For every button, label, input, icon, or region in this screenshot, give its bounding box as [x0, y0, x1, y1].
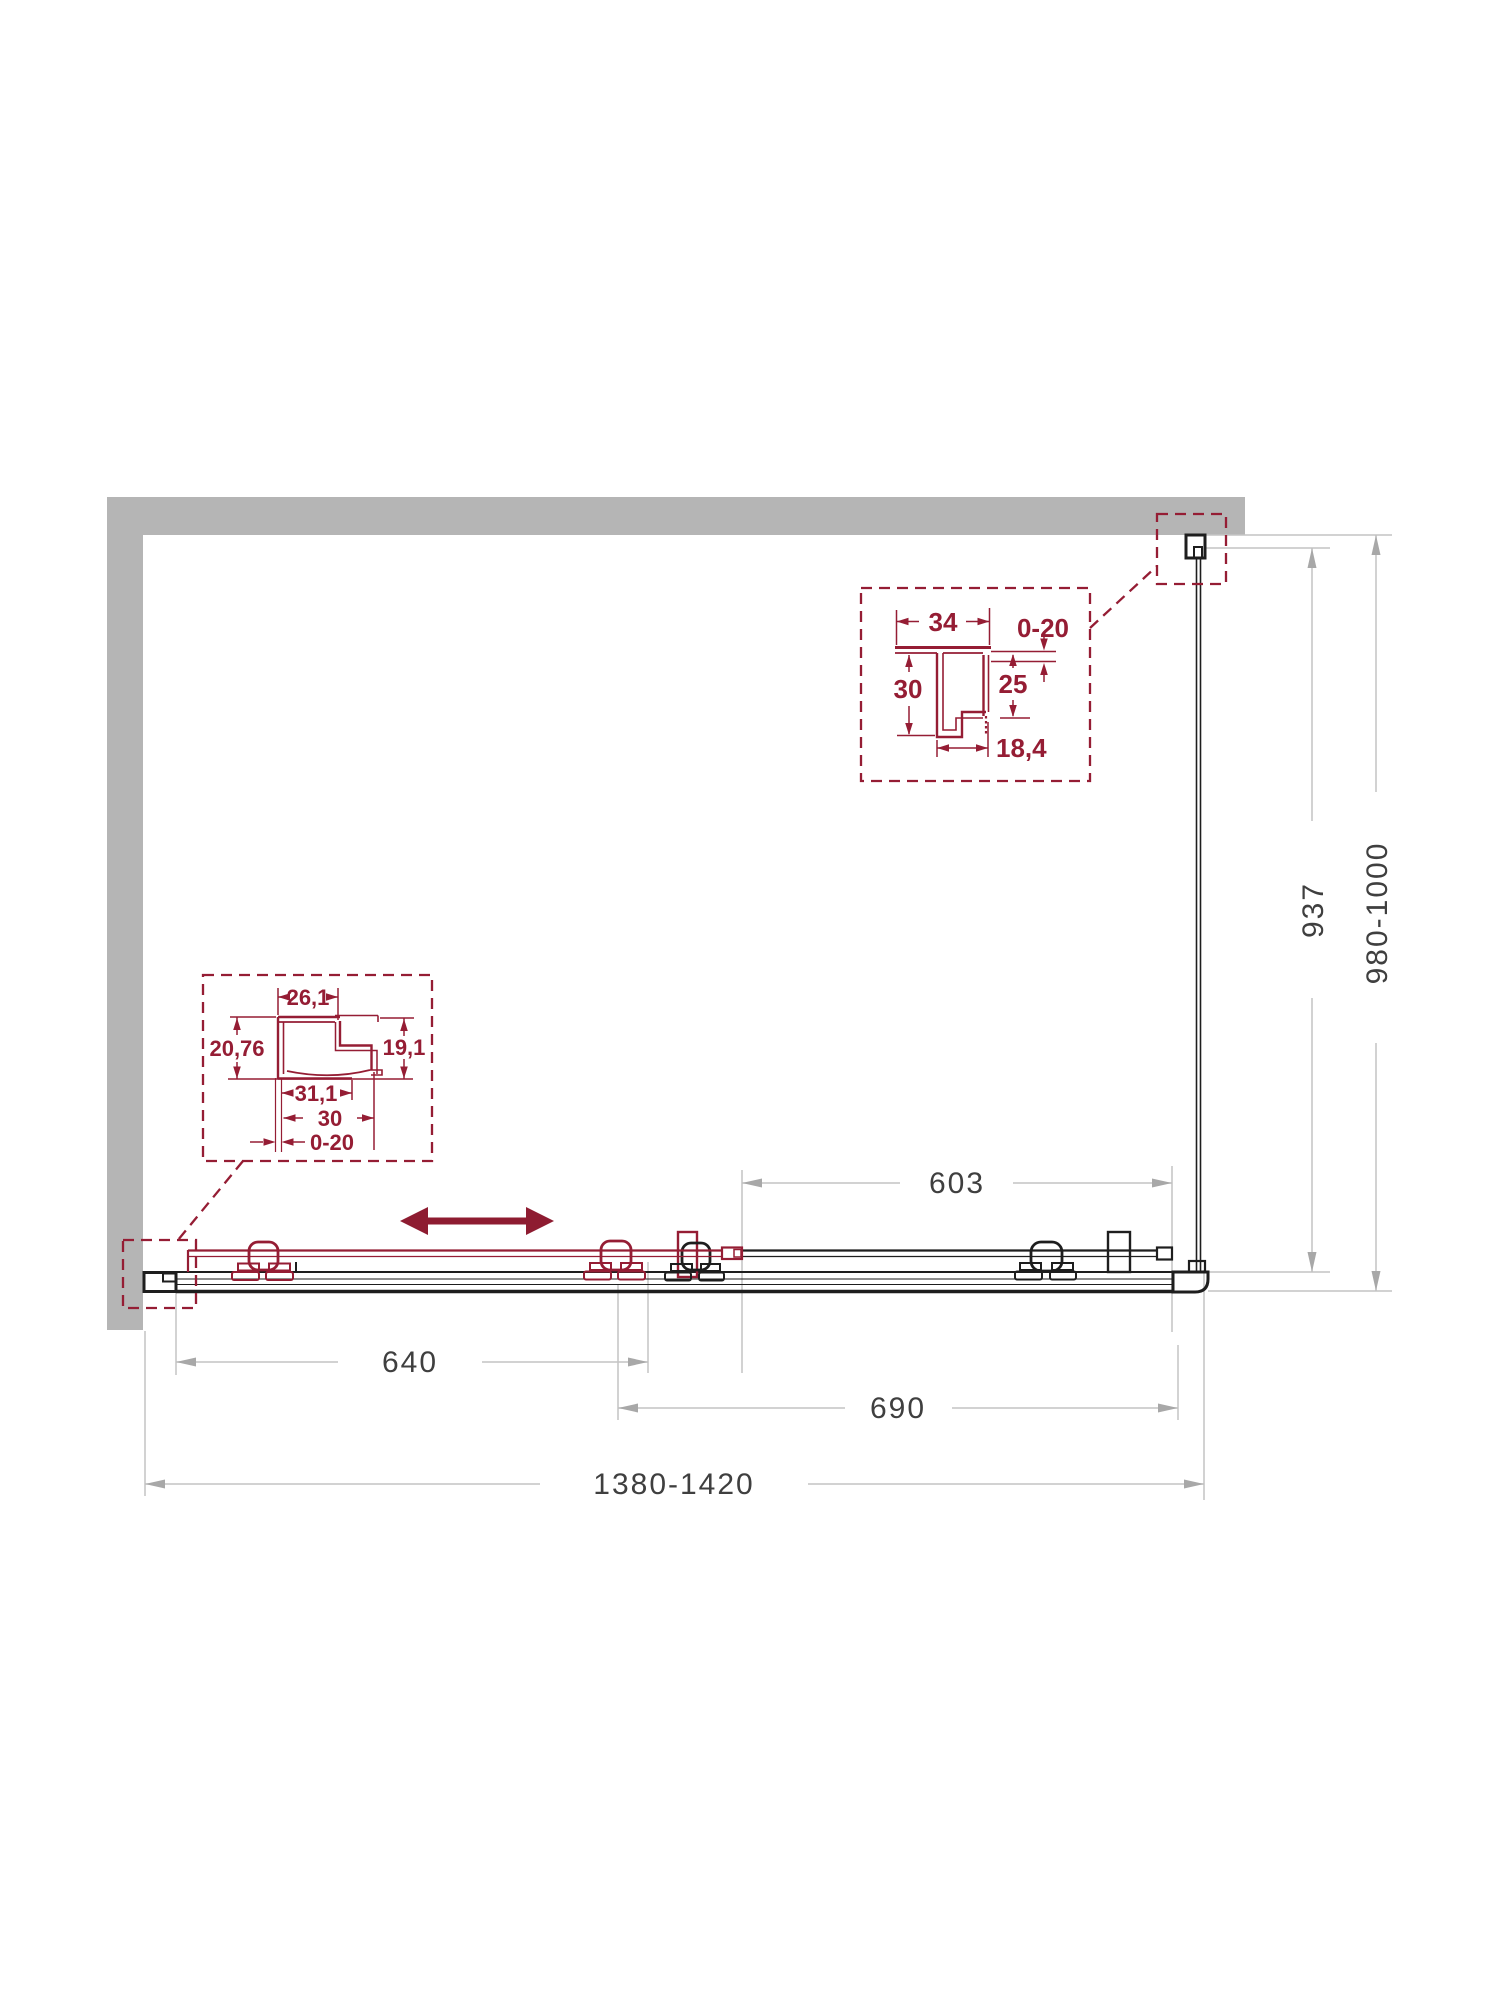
detail-label-flange-width: 34 [929, 607, 958, 637]
technical-drawing-page: 34 0-20 30 25 18,4 [0, 0, 1500, 2000]
detail-label-top-width: 26,1 [287, 985, 330, 1010]
detail-label-inner-width: 31,1 [295, 1081, 338, 1106]
corner-fitting [1173, 1272, 1208, 1292]
dimension-labels: 603 640 690 1380-1420 937 980-1000 [382, 842, 1394, 1501]
sliding-door [188, 1241, 742, 1280]
wall-surfaces [107, 497, 1245, 1330]
detail-label-wall-gap: 0-20 [310, 1130, 354, 1155]
dim-label-side-overall-depth: 980-1000 [1361, 842, 1394, 985]
fixed-panel-bracket [1108, 1232, 1130, 1272]
side-glass-panel [1173, 535, 1208, 1292]
dim-label-side-glass-depth: 937 [1297, 882, 1330, 938]
glass-clamp [1157, 1248, 1172, 1260]
roller-door-2 [584, 1241, 645, 1280]
detail-label-inner-depth: 25 [999, 669, 1028, 699]
shower-track-assembly [144, 1207, 1173, 1292]
dim-label-door-width: 640 [382, 1346, 438, 1379]
dimension-lines [145, 535, 1381, 1489]
roller-door-1 [232, 1242, 293, 1280]
detail-label-base-width: 30 [318, 1106, 342, 1131]
detail-label-channel-width: 18,4 [996, 733, 1047, 763]
detail-leader [1090, 566, 1157, 628]
bottom-guide-profile-section [278, 1016, 382, 1079]
wall-left [107, 497, 143, 1330]
dim-label-opening-width: 690 [870, 1392, 926, 1425]
roller-fixed-1 [665, 1243, 724, 1281]
detail-label-profile-height: 30 [894, 674, 923, 704]
dim-label-overall-width: 1380-1420 [593, 1468, 754, 1501]
detail-label-left-height: 20,76 [209, 1036, 264, 1061]
detail-label-wall-gap: 0-20 [1017, 613, 1069, 643]
wall-top [107, 497, 1245, 535]
dim-label-fixed-glass-width: 603 [929, 1167, 985, 1200]
roller-fixed-2 [1015, 1242, 1076, 1280]
detail-leader [178, 1161, 243, 1240]
double-arrow-icon [400, 1207, 554, 1235]
detail-callout-top-right: 34 0-20 30 25 18,4 [861, 514, 1226, 781]
technical-drawing: 34 0-20 30 25 18,4 [0, 0, 1500, 2000]
detail-label-right-height: 19,1 [383, 1035, 426, 1060]
